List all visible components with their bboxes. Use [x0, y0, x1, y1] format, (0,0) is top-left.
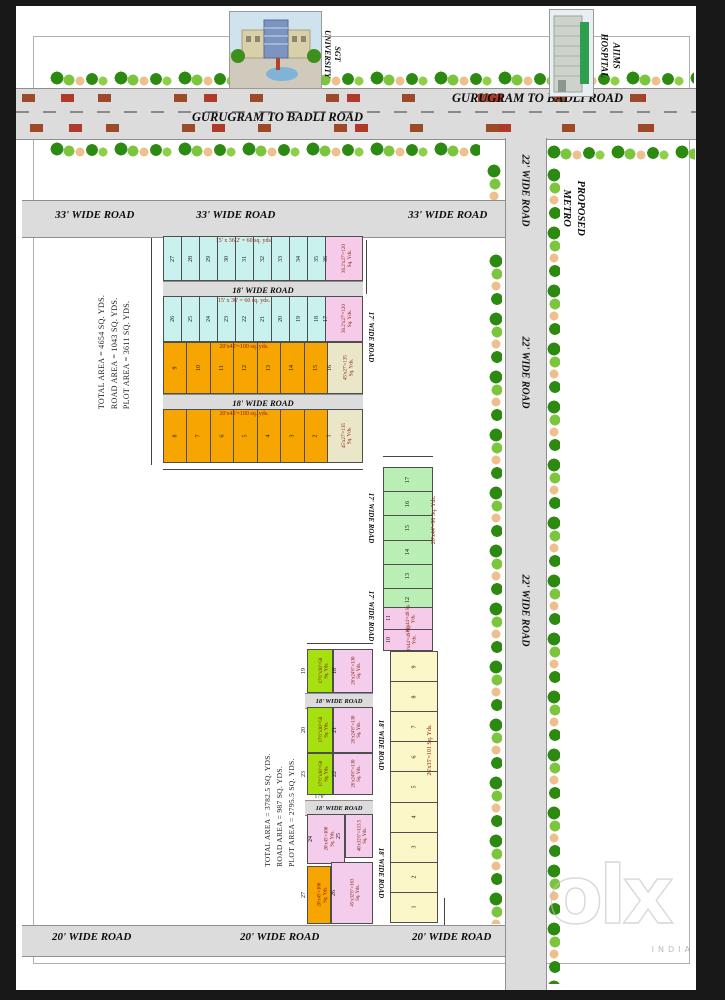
- plot-number: 14: [405, 549, 411, 555]
- plot-cell: 15: [305, 343, 328, 393]
- tree-column-left: [488, 252, 502, 924]
- plot-number: 32: [260, 256, 266, 262]
- plot-number: 5: [242, 435, 248, 438]
- plot-cell: 14: [281, 343, 304, 393]
- plot-22: 22 26'x24'6"=130 Sq. Yds.: [333, 753, 373, 795]
- plot-cell: 9: [391, 652, 437, 682]
- sgt-university-picture: [230, 12, 321, 88]
- plot-number: 22: [242, 316, 248, 322]
- plot-number: 28: [188, 256, 194, 262]
- plot-dimension-label: 26'x24'6"=130 Sq. Yds.: [351, 760, 362, 788]
- plot-number: 29: [206, 256, 212, 262]
- aiims-label-line2: HOSPITAL: [600, 34, 610, 78]
- plot-number: 25: [188, 316, 194, 322]
- plot-36: 36 36.2'x27'=120 Sq. Yds.: [326, 237, 362, 280]
- plot-cell: 2: [305, 410, 328, 462]
- photo-edge-right: [696, 0, 725, 1000]
- plot-row-3: 20'x45'=100 sq. yds. 9101112131415 16 45…: [163, 342, 363, 394]
- plot-number: 27: [170, 256, 176, 262]
- plot-number: 16: [405, 501, 411, 507]
- plot-number: 12: [242, 365, 248, 371]
- plot-dimension-label: 26'x24'6"=130 Sq. Yds.: [351, 716, 362, 744]
- plot-dimension-label: 20'x45'=100 Sq. Yds.: [324, 827, 335, 851]
- plot-number: 17: [323, 316, 329, 322]
- olx-logo: olx: [548, 858, 698, 934]
- plot-16: 16 45'x27'=135 Sq. Yds.: [328, 343, 362, 393]
- plot-cell: 1: [391, 893, 437, 922]
- road-22-label-bottom: 22' WIDE ROAD: [505, 566, 545, 654]
- plot-cell: 11: [211, 343, 234, 393]
- plot-number: 35: [314, 256, 320, 262]
- plot-number: 3: [411, 846, 417, 849]
- proposed-metro-label: PROPOSED METRO: [552, 148, 594, 268]
- dimension-line: [383, 456, 433, 457]
- road-22-vertical: [505, 138, 547, 990]
- road-17-label-2: 17' WIDE ROAD: [362, 468, 380, 568]
- olx-india-label: INDIA: [652, 945, 694, 954]
- plot-cell: 3: [391, 833, 437, 863]
- plot-number: 1: [411, 906, 417, 909]
- plot-number: 25: [336, 833, 342, 839]
- plot-dimension-label: 17'6"x30'=58 Sq. Yds.: [318, 717, 329, 743]
- plot-dimension-label: 36.2'x27'=120 Sq. Yds.: [342, 305, 353, 334]
- plot-number: 17: [405, 477, 411, 483]
- plot-dimension-label: 40'x32'6"=113.5 Sq. Yds.: [357, 820, 368, 851]
- plot-cell: 17: [384, 468, 432, 492]
- plot-21: 21 26'x24'6"=130 Sq. Yds.: [333, 707, 373, 753]
- plot-number: 34: [296, 256, 302, 262]
- plot-cell: 4: [391, 803, 437, 833]
- plot-number: 27: [301, 892, 307, 898]
- plot-number: 33: [278, 256, 284, 262]
- road-20-label-3: 20' WIDE ROAD: [412, 931, 491, 943]
- plot-25: 25 40'x32'6"=113.5 Sq. Yds.: [345, 814, 373, 858]
- metro-label-line2: METRO: [561, 189, 572, 226]
- plot-number: 19: [301, 668, 307, 674]
- olx-watermark: olx INDIA: [548, 858, 698, 968]
- plot-23: 23 17'6"x30'=58 Sq. Yds.: [307, 753, 333, 795]
- plot-number: 30: [224, 256, 230, 262]
- plot-cell: 8: [164, 410, 187, 462]
- plot-20: 20 17'6"x30'=58 Sq. Yds.: [307, 707, 333, 753]
- plot-number: 14: [289, 365, 295, 371]
- plot-number: 4: [266, 435, 272, 438]
- plot-number: 2: [313, 435, 319, 438]
- road-22-label-top: 22' WIDE ROAD: [505, 146, 545, 234]
- plot-number: 6: [411, 755, 417, 758]
- green-plot-strip: 171615141312: [383, 467, 433, 613]
- plot-26: 26 45'x32'6"=163 Sq. Yds.: [331, 862, 373, 924]
- photo-edge-left: [0, 0, 16, 1000]
- road-20-label-1: 20' WIDE ROAD: [52, 931, 131, 943]
- plot-number: 5: [411, 785, 417, 788]
- plot-row-4: 20'x45'=100 sq. yds. 8765432 1 45'x27'=1…: [163, 409, 363, 463]
- plot-cell: 4: [258, 410, 281, 462]
- area-bottom-total: TOTAL AREA = 3782.5 SQ. YDS.: [262, 753, 274, 867]
- plot-number: 20: [278, 316, 284, 322]
- road-18-vlabel-2: 18' WIDE ROAD: [372, 828, 390, 918]
- plot-number: 23: [224, 316, 230, 322]
- yellow-strip-dimension-label: 26'x35'=101 Sq. Yds.: [425, 700, 435, 800]
- plot-cell: 9: [164, 343, 187, 393]
- plot-number: 21: [260, 316, 266, 322]
- plot-dimension-label: 26'x24'6"=130 Sq. Yds.: [351, 657, 362, 685]
- plot-number: 16: [327, 365, 333, 371]
- plot-cell: 13: [384, 565, 432, 589]
- plot-number: 36: [323, 256, 329, 262]
- plot-number: 26: [170, 316, 176, 322]
- plot-row-1-title: 15' x 36.2' = 60 sq. yds.: [164, 238, 324, 244]
- plot-row-4-title: 20'x45'=100 sq. yds.: [164, 411, 324, 417]
- metro-label-line1: PROPOSED: [575, 180, 586, 235]
- dimension-line: [444, 898, 445, 925]
- plot-number: 11: [386, 615, 392, 621]
- plot-number: 26: [331, 890, 337, 896]
- plot-number: 7: [411, 725, 417, 728]
- road-18-vlabel-1: 18' WIDE ROAD: [372, 700, 390, 790]
- plot-number: 4: [411, 816, 417, 819]
- site-plan-image: olx INDIA GURUGRAM TO BADLI ROAD GURUGRA…: [0, 0, 725, 1000]
- plot-row-2-title: 15' x 36' = 60 sq. yds.: [164, 298, 324, 304]
- plot-24: 24 20'x45'=100 Sq. Yds.: [307, 814, 345, 864]
- plot-cell: 16: [384, 492, 432, 516]
- plot-number: 10: [196, 365, 202, 371]
- plot-dimension-label: 45'x27'=135 Sq. Yds.: [341, 423, 352, 449]
- plot-row-3-cells: 9101112131415: [164, 343, 328, 393]
- plot-1: 1 45'x27'=135 Sq. Yds.: [328, 410, 362, 462]
- aiims-hospital-label: AIIMS HOSPITAL: [594, 10, 626, 102]
- plot-row-3-title: 20'x45'=100 sq. yds.: [164, 344, 324, 350]
- area-left-plot: PLOT AREA = 3611 SQ. YDS.: [121, 295, 134, 409]
- plot-number: 3: [289, 435, 295, 438]
- plot-dimension-label: 17'6"x30'=58 Sq. Yds.: [318, 761, 329, 787]
- plot-number: 8: [411, 695, 417, 698]
- plot-number: 11: [219, 365, 225, 371]
- plot-number: 31: [242, 256, 248, 262]
- plot-number: 7: [196, 435, 202, 438]
- sgt-university-label: SGT UNIVERSITY: [318, 10, 346, 98]
- photo-edge-bottom: [0, 990, 725, 1000]
- plot-number: 2: [411, 876, 417, 879]
- plot-row-4-cells: 8765432: [164, 410, 328, 462]
- plot-cell: 10: [187, 343, 210, 393]
- plot-dimension-label: 45'x27'=135 Sq. Yds.: [343, 355, 354, 380]
- plot-number: 9: [172, 367, 178, 370]
- tree-row-below-road-left: [48, 139, 480, 159]
- plot-number: 15: [313, 365, 319, 371]
- road-17-label-1: 17' WIDE ROAD: [362, 282, 380, 392]
- plot-row-2: 15' x 36' = 60 sq. yds. 2625242322212019…: [163, 296, 363, 342]
- sgt-label-line1: SGT: [333, 46, 342, 61]
- aiims-hospital-photo: [549, 9, 594, 97]
- plot-number: 21: [332, 727, 338, 733]
- area-bottom-plot: PLOT AREA = 2795.5 SQ. YDS.: [286, 753, 298, 867]
- plot-cell: 14: [384, 541, 432, 565]
- plot-dimension-label: 45'x32'6"=163 Sq. Yds.: [350, 879, 361, 907]
- dimension-line: [163, 469, 363, 470]
- plot-cell: 6: [211, 410, 234, 462]
- plot-number: 22: [332, 771, 338, 777]
- road-22-label-mid: 22' WIDE ROAD: [505, 328, 545, 416]
- dimension-line: [151, 238, 152, 465]
- plot-number: 8: [172, 435, 178, 438]
- plot-number: 9: [411, 665, 417, 668]
- sgt-label-line2: UNIVERSITY: [323, 30, 332, 78]
- plot-dimension-label: 36.2'x27'=120 Sq. Yds.: [342, 244, 353, 273]
- plot-cell: 15: [384, 516, 432, 540]
- plot-number: 18: [332, 668, 338, 674]
- aiims-label-line1: AIIMS: [612, 43, 622, 69]
- area-left-total: TOTAL AREA = 4654 SQ. YDS.: [96, 295, 109, 409]
- plot-cell: 12: [234, 343, 257, 393]
- plot-number: 24: [308, 836, 314, 842]
- green-strip-dimension-label: 20'x44'=98 Sq. Yds.: [429, 475, 439, 565]
- area-left-road: ROAD AREA = 1043 SQ. YDS.: [109, 295, 122, 409]
- area-bottom-road: ROAD AREA = 987 SQ. YDS.: [274, 753, 286, 867]
- plot-cell: 10 10'x44'=49 Sq. Yds.: [384, 630, 432, 651]
- area-summary-bottom: TOTAL AREA = 3782.5 SQ. YDS. ROAD AREA =…: [260, 710, 300, 910]
- sgt-university-photo: [229, 11, 322, 89]
- plot-number: 23: [301, 771, 307, 777]
- plot-cell: 3: [281, 410, 304, 462]
- plot-number: 19: [296, 316, 302, 322]
- plot-cell: 7: [187, 410, 210, 462]
- plot-18: 18 26'x24'6"=130 Sq. Yds.: [333, 649, 373, 693]
- plot-number: 1: [327, 435, 333, 438]
- road-33-label-3: 33' WIDE ROAD: [408, 209, 487, 221]
- road-33-label-2: 33' WIDE ROAD: [196, 209, 275, 221]
- plot-number: 15: [405, 525, 411, 531]
- plot-cell: 2: [391, 863, 437, 893]
- dimension-note: 17'6": [309, 794, 331, 799]
- plot-cell: 5: [234, 410, 257, 462]
- plot-number: 6: [219, 435, 225, 438]
- cars-lower-lane: [30, 124, 690, 132]
- plot-number: 10: [386, 637, 392, 643]
- plot-number: 13: [266, 365, 272, 371]
- plot-19: 19 17'6"x30'=58 Sq. Yds.: [307, 649, 333, 693]
- plot-number: 24: [206, 316, 212, 322]
- road-33-label-1: 33' WIDE ROAD: [55, 209, 134, 221]
- plot-cell: 13: [258, 343, 281, 393]
- dimension-line: [307, 643, 373, 644]
- plot-dimension-label: 17'6"x30'=58 Sq. Yds.: [318, 658, 329, 684]
- photo-edge-top: [0, 0, 725, 6]
- plot-number: 18: [314, 316, 320, 322]
- plot-27: 27 20'x45'=100 Sq. Yds.: [307, 866, 331, 924]
- pink-plot-strip: 11 10'x44'=49 Sq. Yds. 10 10'x44'=49 Sq.…: [383, 607, 433, 651]
- area-summary-left: TOTAL AREA = 4654 SQ. YDS. ROAD AREA = 1…: [93, 257, 137, 447]
- plot-dimension-label: 20'x45'=100 Sq. Yds.: [317, 883, 328, 907]
- plot-17: 17 36.2'x27'=120 Sq. Yds.: [326, 297, 362, 341]
- aiims-hospital-picture: [550, 10, 593, 96]
- plot-number: 13: [405, 573, 411, 579]
- plot-number: 20: [301, 727, 307, 733]
- road-20-label-2: 20' WIDE ROAD: [240, 931, 319, 943]
- road-label-gurugram-lower: GURUGRAM TO BADLI ROAD: [192, 110, 363, 125]
- plot-row-1: 15' x 36.2' = 60 sq. yds. 27282930313233…: [163, 236, 363, 281]
